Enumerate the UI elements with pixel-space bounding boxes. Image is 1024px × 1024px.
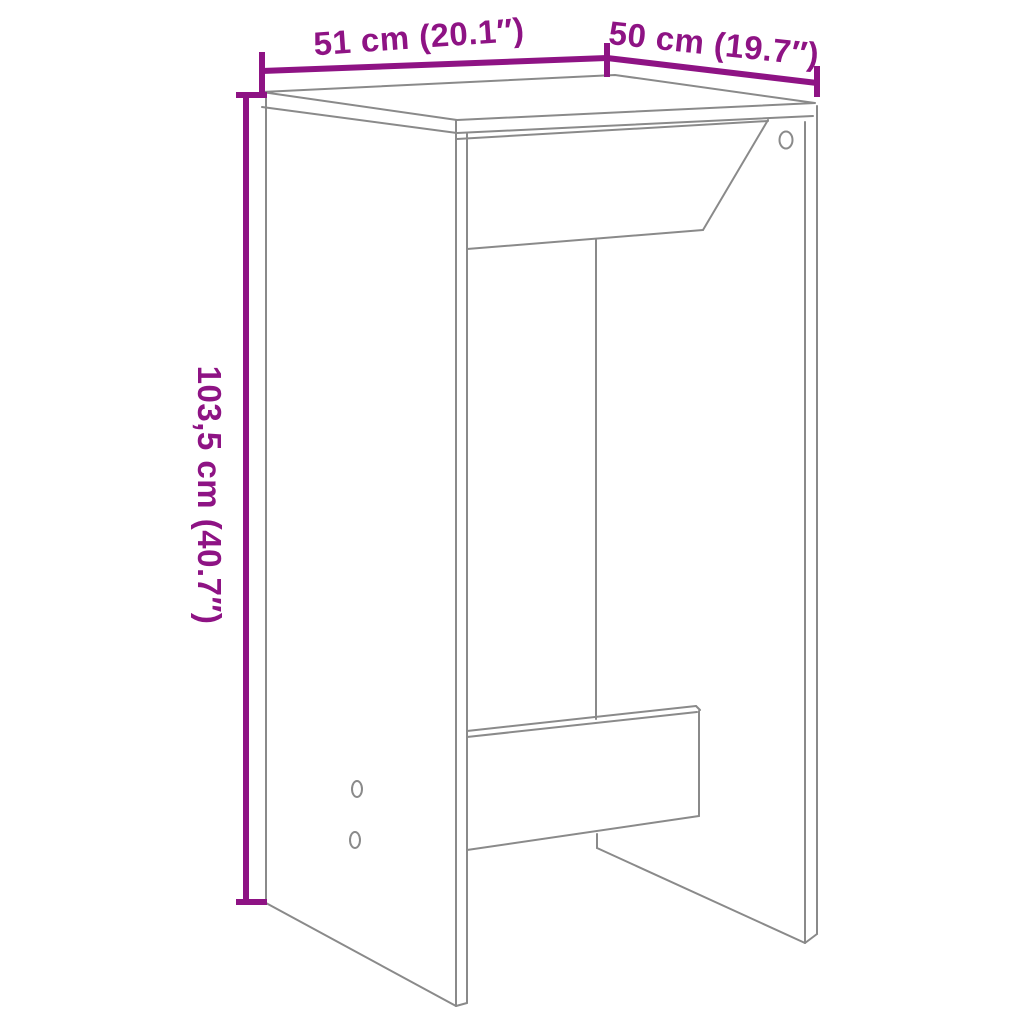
apron-diagonal-cut — [703, 120, 768, 230]
screw-hole-left-panel-upper — [352, 781, 362, 797]
rail-top-right-corner — [696, 706, 700, 710]
tabletop-underside-right — [457, 116, 813, 133]
left-panel-bottom-corner — [456, 1003, 467, 1006]
height-dimension-label: 103,5 cm (40.7″) — [190, 366, 228, 625]
tabletop-underside-left — [262, 107, 457, 133]
screw-hole-right-panel — [780, 132, 793, 149]
table-outline-group — [262, 75, 817, 1006]
right-panel-bottom-corner — [805, 934, 817, 943]
dimension-lines-group — [236, 43, 817, 902]
bar-table-line-drawing — [0, 0, 1024, 1024]
rail-bottom-edge — [467, 816, 699, 850]
screw-hole-left-panel-lower — [350, 832, 360, 848]
rail-top-edge-inner — [467, 712, 697, 737]
left-panel-bottom-edge — [266, 903, 456, 1006]
dimension-diagram: 51 cm (20.1″) 50 cm (19.7″) 103,5 cm (40… — [0, 0, 1024, 1024]
apron-bottom-edge — [467, 230, 703, 249]
tabletop-top-face — [262, 75, 815, 120]
right-panel-bottom-back-edge — [597, 848, 805, 943]
rail-top-edge-outer — [467, 706, 696, 731]
